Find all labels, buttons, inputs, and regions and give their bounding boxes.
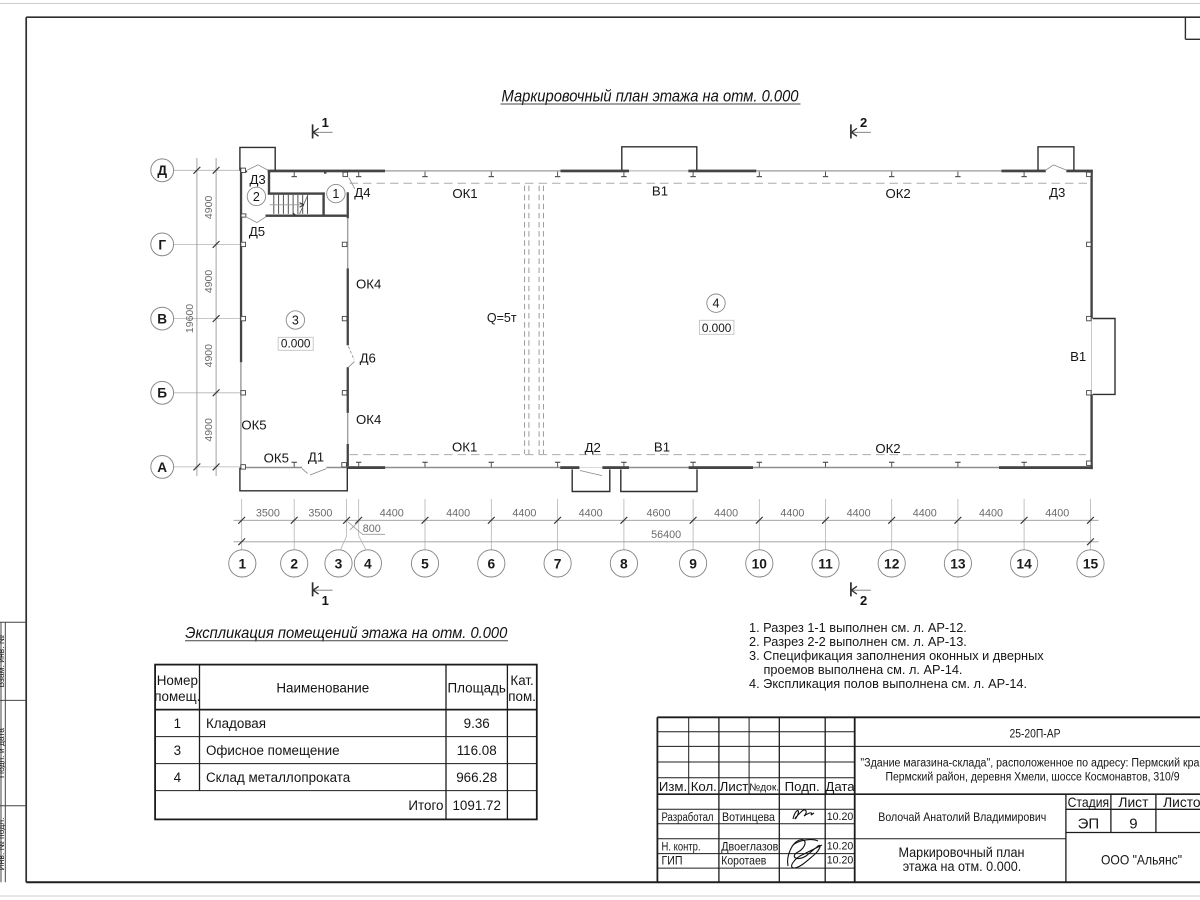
svg-text:ОК2: ОК2 [885, 186, 910, 201]
svg-text:Итого: Итого [408, 798, 443, 813]
svg-text:15: 15 [1083, 557, 1099, 572]
svg-text:4900: 4900 [203, 344, 215, 368]
svg-text:4400: 4400 [847, 508, 871, 520]
svg-text:Лист: Лист [720, 779, 749, 794]
svg-text:"Здание магазина-склада", расп: "Здание магазина-склада", расположенное … [860, 758, 1200, 770]
svg-text:966.28: 966.28 [456, 770, 497, 785]
svg-text:800: 800 [363, 523, 381, 535]
svg-text:1: 1 [238, 557, 246, 572]
svg-text:4: 4 [713, 297, 720, 311]
svg-text:12: 12 [884, 557, 900, 572]
svg-text:9.36: 9.36 [464, 716, 490, 731]
svg-text:3: 3 [174, 743, 181, 758]
svg-text:пом.: пом. [508, 689, 536, 704]
svg-text:3. Спецификация заполнения око: 3. Спецификация заполнения оконных и две… [749, 648, 1044, 663]
svg-text:Маркировочный план: Маркировочный план [899, 845, 1025, 860]
svg-text:4400: 4400 [1045, 508, 1069, 520]
svg-text:19600: 19600 [184, 304, 196, 333]
svg-text:В: В [157, 312, 167, 327]
svg-text:4400: 4400 [780, 508, 804, 520]
svg-text:4: 4 [364, 557, 372, 572]
svg-text:Инв. № подл.: Инв. № подл. [0, 818, 6, 871]
svg-text:5: 5 [421, 557, 429, 572]
svg-text:А: А [157, 460, 167, 475]
svg-text:13: 13 [950, 557, 966, 572]
svg-text:ОК1: ОК1 [452, 440, 477, 455]
svg-text:Листов: Листов [1163, 795, 1200, 810]
svg-text:Экспликация помещений этажа на: Экспликация помещений этажа на отм. 0.00… [185, 625, 507, 642]
svg-text:Склад металлопроката: Склад металлопроката [206, 770, 351, 785]
svg-text:Д3: Д3 [249, 172, 265, 187]
svg-text:Площадь: Площадь [448, 681, 506, 696]
svg-text:56400: 56400 [651, 529, 681, 541]
svg-text:14: 14 [1016, 557, 1032, 572]
svg-text:2: 2 [860, 115, 867, 130]
svg-text:1: 1 [322, 593, 329, 608]
svg-text:2: 2 [253, 190, 260, 204]
svg-text:7: 7 [554, 557, 562, 572]
svg-text:ООО "Альянс": ООО "Альянс" [1101, 853, 1182, 868]
svg-text:этажа на отм. 0.000.: этажа на отм. 0.000. [903, 859, 1022, 874]
svg-text:Дата: Дата [825, 779, 855, 794]
svg-text:4400: 4400 [380, 508, 404, 520]
svg-text:В1: В1 [1070, 349, 1086, 364]
svg-text:3500: 3500 [256, 508, 280, 520]
svg-text:Подп. и дата: Подп. и дата [0, 728, 6, 778]
svg-text:помещ.: помещ. [154, 689, 200, 704]
svg-text:11: 11 [818, 557, 833, 572]
svg-text:Кладовая: Кладовая [206, 716, 266, 731]
svg-text:Q=5т: Q=5т [487, 311, 517, 325]
svg-text:0.000: 0.000 [702, 321, 732, 335]
svg-text:Д2: Д2 [585, 440, 601, 455]
svg-text:Вотинцева: Вотинцева [722, 810, 775, 824]
svg-text:4400: 4400 [446, 508, 470, 520]
svg-text:Подп.: Подп. [785, 779, 820, 794]
svg-text:3: 3 [292, 314, 299, 328]
svg-text:№док.: №док. [749, 782, 779, 793]
svg-text:Пермский район, деревня Хмели,: Пермский район, деревня Хмели, шоссе Кос… [886, 771, 1180, 783]
svg-text:Кол.: Кол. [691, 779, 717, 794]
svg-text:2. Разрез 2-2 выполнен см. л.: 2. Разрез 2-2 выполнен см. л. АР-13. [749, 634, 967, 649]
svg-text:8: 8 [620, 557, 628, 572]
svg-text:ОК4: ОК4 [356, 412, 381, 427]
svg-text:ОК5: ОК5 [264, 450, 289, 465]
svg-text:2: 2 [290, 557, 298, 572]
svg-text:116.08: 116.08 [457, 743, 497, 758]
svg-text:2: 2 [860, 593, 867, 608]
svg-text:3500: 3500 [308, 508, 332, 520]
svg-text:Д6: Д6 [360, 350, 376, 365]
svg-text:1. Разрез 1-1 выполнен см. л.: 1. Разрез 1-1 выполнен см. л. АР-12. [749, 620, 967, 635]
svg-text:Д: Д [157, 163, 167, 178]
svg-text:9: 9 [1129, 815, 1137, 832]
svg-text:ОК2: ОК2 [875, 441, 900, 456]
svg-text:Двоеглазов: Двоеглазов [721, 839, 778, 853]
svg-text:ГИП: ГИП [662, 856, 683, 868]
svg-text:Наименование: Наименование [276, 681, 369, 696]
svg-text:4. Экспликация полов выполнена: 4. Экспликация полов выполнена см. л. АР… [749, 676, 1027, 691]
svg-text:25-20П-АР: 25-20П-АР [1010, 726, 1061, 740]
svg-text:В1: В1 [654, 440, 670, 455]
svg-text:Стадия: Стадия [1068, 795, 1110, 810]
svg-text:10.20: 10.20 [827, 855, 854, 867]
svg-text:10.20: 10.20 [827, 811, 854, 823]
svg-text:4400: 4400 [579, 508, 603, 520]
svg-text:ОК5: ОК5 [241, 417, 266, 432]
svg-text:9: 9 [689, 557, 697, 572]
svg-text:Коротаев: Коротаев [721, 854, 766, 868]
svg-text:ОК1: ОК1 [452, 186, 477, 201]
svg-text:Маркировочный план этажа на от: Маркировочный план этажа на отм. 0.000 [502, 88, 800, 106]
svg-text:1: 1 [332, 187, 339, 201]
svg-text:4400: 4400 [512, 508, 536, 520]
svg-text:Номер: Номер [157, 673, 198, 688]
svg-text:Волочай Анатолий Владимирович: Волочай Анатолий Владимирович [878, 810, 1046, 824]
svg-text:4900: 4900 [203, 418, 215, 442]
svg-text:Кат.: Кат. [510, 673, 533, 688]
svg-text:0.000: 0.000 [281, 337, 311, 351]
svg-text:Взам. инв. №: Взам. инв. № [0, 635, 6, 688]
svg-text:Д1: Д1 [308, 449, 324, 464]
svg-text:Разработал: Разработал [662, 812, 714, 824]
svg-text:4900: 4900 [203, 270, 215, 294]
svg-text:Изм.: Изм. [659, 779, 687, 794]
svg-text:10.20: 10.20 [827, 840, 854, 852]
svg-text:3: 3 [335, 557, 343, 572]
svg-text:ОК4: ОК4 [356, 276, 381, 291]
svg-text:ЭП: ЭП [1078, 815, 1100, 832]
svg-text:1: 1 [322, 115, 329, 130]
svg-text:4400: 4400 [979, 508, 1003, 520]
svg-text:6: 6 [487, 557, 495, 572]
svg-text:Г: Г [158, 237, 166, 252]
svg-text:1: 1 [174, 716, 181, 731]
svg-text:4: 4 [174, 770, 182, 785]
svg-text:проемов выполнена см. л. АР-14: проемов выполнена см. л. АР-14. [764, 662, 963, 677]
svg-text:Б: Б [157, 386, 167, 401]
svg-text:4400: 4400 [714, 508, 738, 520]
svg-text:4600: 4600 [646, 508, 670, 520]
svg-text:4900: 4900 [203, 196, 215, 220]
svg-text:Лист: Лист [1118, 795, 1149, 810]
svg-text:10: 10 [752, 557, 768, 572]
svg-text:Н. контр.: Н. контр. [662, 841, 701, 853]
svg-text:Д5: Д5 [249, 224, 265, 239]
svg-text:Д3: Д3 [1049, 185, 1065, 200]
svg-text:Офисное помещение: Офисное помещение [206, 743, 340, 758]
svg-text:1091.72: 1091.72 [452, 798, 500, 813]
svg-text:4400: 4400 [913, 508, 937, 520]
svg-text:Д4: Д4 [354, 185, 370, 200]
svg-text:В1: В1 [652, 183, 668, 198]
